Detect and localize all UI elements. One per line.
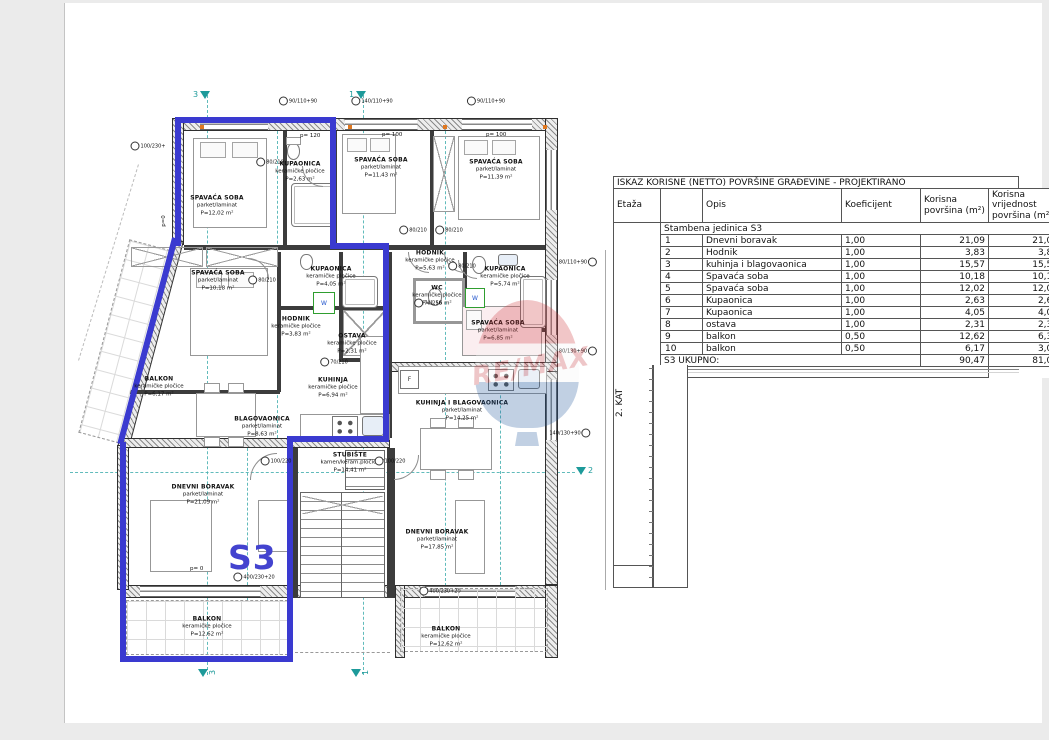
- floor-label: 2. KAT: [615, 378, 651, 428]
- room-label: SPAVAĆA SOBAparket/laminatP=12,02 m²: [190, 195, 243, 218]
- dim-callout: 400/230+20: [419, 587, 460, 596]
- dining-table: [420, 428, 492, 470]
- chair: [228, 383, 244, 393]
- axis-marker-3-top: 3: [193, 90, 210, 99]
- right-edge-line: [605, 250, 606, 590]
- s3-outline-segment: [120, 442, 126, 662]
- dim-callout: 100/220: [375, 457, 406, 466]
- room-label: BALKONkeramičke pločiceP=12,62 m²: [182, 616, 231, 639]
- chair: [228, 437, 244, 447]
- callout-circle-icon: [448, 262, 457, 271]
- dim-callout: 140/130+90: [549, 429, 590, 438]
- stairs-cross: [302, 496, 383, 514]
- s3-outline-segment: [330, 243, 389, 249]
- axis-label: 3: [208, 670, 217, 675]
- table-underline: [688, 369, 1019, 370]
- axis-label: 1: [361, 670, 370, 675]
- fridge: F: [400, 370, 419, 389]
- callout-circle-icon: [279, 97, 288, 106]
- callout-circle-icon: [588, 347, 597, 356]
- callout-circle-icon: [467, 97, 476, 106]
- dim-callout: 80/130+90: [559, 347, 597, 356]
- callout-circle-icon: [131, 142, 140, 151]
- chair: [204, 383, 220, 393]
- pillow: [464, 140, 488, 155]
- s3-outline-segment: [287, 436, 293, 662]
- room-label: STUBIŠTEkamen/keram.pločiceP=14,41 m²: [321, 452, 380, 475]
- fridge-letter: F: [408, 376, 411, 383]
- chair: [458, 470, 474, 480]
- callout-circle-icon: [261, 457, 270, 466]
- etaza-ext-divider: [613, 565, 653, 566]
- room-label: SPAVAĆA SOBAparket/laminatP=11,43 m²: [354, 157, 407, 180]
- callout-circle-icon: [582, 429, 591, 438]
- num-column-extension: [653, 365, 688, 588]
- sink: [362, 416, 384, 436]
- table-row: 5Spavaća soba1,0012,0212,02: [614, 283, 1049, 295]
- window: [546, 150, 557, 210]
- sofa: [150, 500, 212, 572]
- stove: [488, 369, 514, 391]
- wall-node: [543, 125, 547, 129]
- col-header-vrijednost: Korisna vrijednost površina (m²): [989, 189, 1049, 223]
- pillow: [370, 138, 390, 152]
- dim-callout: 80/210: [248, 276, 276, 285]
- table-row: 1Dnevni boravak1,0021,0921,09: [614, 235, 1049, 247]
- callout-circle-icon: [419, 587, 428, 596]
- room-label: DNEVNI BORAVAKparket/laminatP=17,85 m²: [406, 529, 469, 552]
- parapet-label: p=0: [161, 215, 167, 227]
- col-header-num: [661, 189, 703, 223]
- window: [462, 119, 532, 130]
- callout-circle-icon: [375, 457, 384, 466]
- dim-callout: 80/110+90: [559, 258, 597, 267]
- room-label: KUHINJAkeramičke pločiceP=6,94 m²: [308, 377, 357, 400]
- table-row: 3kuhinja i blagovaonica1,0015,5715,57: [614, 259, 1049, 271]
- callout-circle-icon: [256, 158, 265, 167]
- parapet-label: p= 120: [300, 133, 320, 139]
- dim-callout: 80/210: [435, 226, 463, 235]
- toilet-tank: [286, 137, 301, 145]
- col-header-etaza: Etaža: [614, 189, 661, 223]
- room-label: HODNIKkeramičke pločiceP=3,83 m²: [271, 316, 320, 339]
- pillow: [347, 138, 367, 152]
- dim-callout: 90/110+90: [467, 97, 505, 106]
- axis-label: 1: [349, 90, 354, 99]
- room-label: SPAVAĆA SOBAparket/laminatP=11,39 m²: [469, 159, 522, 182]
- table-underline-2: [688, 372, 1019, 373]
- callout-circle-icon: [399, 226, 408, 235]
- parapet-label: p= 100: [486, 132, 506, 138]
- dim-callout: 70/210: [414, 299, 442, 308]
- flag-icon: [356, 91, 366, 99]
- screenshot-root: { "plan": { "unit_label": "S3", "markers…: [0, 0, 1049, 740]
- callout-circle-icon: [248, 276, 257, 285]
- parapet-label: p= 100: [382, 132, 402, 138]
- wardrobe: [206, 247, 278, 267]
- wardrobe: [433, 136, 455, 212]
- callout-circle-icon: [588, 258, 597, 267]
- room-label: DNEVNI BORAVAKparket/laminatP=21,09 m²: [172, 484, 235, 507]
- table-row: 10balkon0,506,173,09: [614, 343, 1049, 355]
- wall-node: [443, 125, 447, 129]
- room-label: SPAVAĆA SOBAparket/laminatP=6,85 m²: [471, 320, 524, 343]
- table-row: 8ostava1,002,312,31: [614, 319, 1049, 331]
- room-label: BALKONkeramičke pločiceP=12,62 m²: [421, 626, 470, 649]
- flag-icon: [198, 669, 208, 677]
- pillow: [492, 140, 516, 155]
- col-header-povrsina: Korisna površina (m²): [921, 189, 989, 223]
- s3-outline-segment: [330, 117, 336, 249]
- dim-callout: 70/210: [320, 358, 348, 367]
- room-label: BALKONkeramičke pločiceP=6,17 m²: [134, 376, 183, 399]
- room-label: KUPAONICAkeramičke pločiceP=5,74 m²: [480, 266, 529, 289]
- washer-letter: W: [472, 295, 478, 302]
- etaza-cell: [614, 223, 661, 367]
- dim-callout: 80/210: [399, 226, 427, 235]
- shower: [291, 183, 335, 227]
- balloon-basket-icon: [515, 432, 539, 446]
- axis-label: 2: [588, 466, 593, 475]
- washer: W: [313, 292, 335, 314]
- dim-callout: 100/220: [261, 457, 292, 466]
- washbasin: [498, 254, 518, 266]
- callout-circle-icon: [414, 299, 423, 308]
- stove: [332, 416, 358, 438]
- flag-icon: [200, 91, 210, 99]
- wall-node: [200, 125, 204, 129]
- room-label: BLAGOVAONICAparket/laminatP=8,63 m²: [234, 416, 290, 439]
- pillow: [200, 142, 226, 158]
- chair: [204, 437, 220, 447]
- dim-callout: 80/210: [448, 262, 476, 271]
- table-row: 9balkon0,5012,626,31: [614, 331, 1049, 343]
- axis-marker-1-top: 1: [349, 90, 366, 99]
- s3-outline-segment: [175, 117, 336, 123]
- sink: [518, 369, 540, 389]
- table-row: 7Kupaonica1,004,054,05: [614, 307, 1049, 319]
- total-label-cell: S3 UKUPNO:: [661, 355, 921, 367]
- table-group-row: Stambena jedinica S3: [614, 223, 1049, 235]
- room-label: KUPAONICAkeramičke pločiceP=4,05 m²: [306, 266, 355, 289]
- table-row: 4Spavaća soba1,0010,1810,18: [614, 271, 1049, 283]
- unit-label-s3: S3: [228, 538, 277, 577]
- callout-circle-icon: [320, 358, 329, 367]
- s3-outline-segment: [383, 243, 389, 442]
- porch-edge: [295, 652, 390, 653]
- dim-callout: 100/230+: [131, 142, 166, 151]
- room-label: OSTAVAkeramičke pločiceP=2,31 m²: [327, 333, 376, 356]
- pillow: [232, 142, 258, 158]
- axis-marker-3-bottom: 3: [198, 668, 215, 677]
- dim-callout: 90/110+90: [279, 97, 317, 106]
- callout-circle-icon: [435, 226, 444, 235]
- table-header-row: Etaža Opis Koeficijent Korisna površina …: [614, 189, 1049, 223]
- s3-outline-segment: [120, 656, 293, 662]
- room-label: SPAVAĆA SOBAparket/laminatP=10,18 m²: [191, 270, 244, 293]
- total-povrsina-cell: 90,47: [921, 355, 989, 367]
- washer-letter: W: [321, 300, 327, 307]
- table-row: 6Kupaonica1,002,632,63: [614, 295, 1049, 307]
- axis-label: 3: [193, 90, 198, 99]
- col-header-koeficijent: Koeficijent: [842, 189, 921, 223]
- area-table: Etaža Opis Koeficijent Korisna površina …: [613, 188, 1049, 378]
- window: [345, 119, 417, 130]
- parapet-label: p= 0: [190, 566, 203, 572]
- flag-icon: [576, 467, 586, 475]
- dim-callout: 80/210: [256, 158, 284, 167]
- s3-outline-segment: [175, 117, 181, 246]
- group-label-cell: Stambena jedinica S3: [661, 223, 1049, 235]
- toilet: [287, 143, 300, 160]
- s3-outline-segment: [287, 436, 389, 442]
- wall-node: [348, 125, 352, 129]
- axis-marker-1-bottom: 1: [351, 668, 368, 677]
- col-header-opis: Opis: [703, 189, 842, 223]
- washer: W: [465, 288, 485, 308]
- axis-marker-2-right: 2: [576, 466, 593, 475]
- flag-icon: [351, 669, 361, 677]
- window: [546, 280, 557, 335]
- window: [140, 586, 260, 597]
- chair: [430, 470, 446, 480]
- total-vrijednost-cell: 81,08: [989, 355, 1049, 367]
- room-label: KUHINJA I BLAGOVAONICAparket/laminatP=14…: [416, 400, 509, 423]
- table-row: 2Hodnik1,003,833,83: [614, 247, 1049, 259]
